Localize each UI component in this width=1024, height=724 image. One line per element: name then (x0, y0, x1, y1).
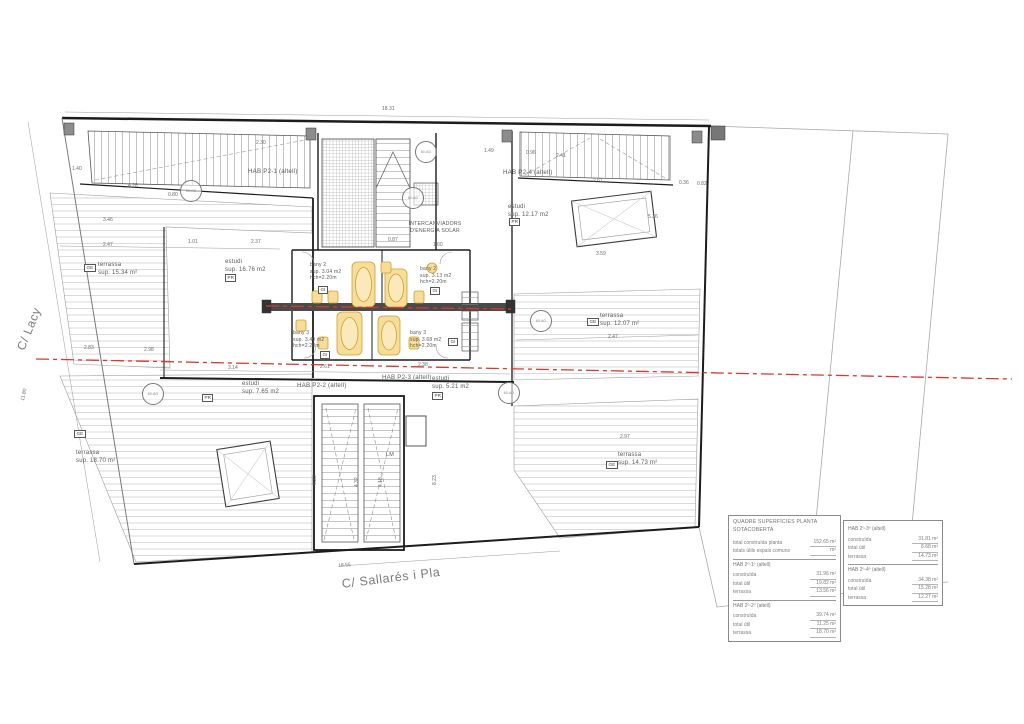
table-section-hab-2-4: HAB 2º-4º (altell) construïda 34.38 m² t… (848, 564, 938, 602)
table-row: terrassa 14.73 m² (848, 553, 938, 562)
plan-label: terrassa sup. 14.73 m² (618, 452, 657, 468)
sink (381, 262, 391, 273)
skylight-top-right (571, 191, 656, 246)
plan-label: HAB P2-3 (altell) (382, 374, 431, 382)
drawing-sheet: HAB P2-1 (altell)estudi sup. 16.76 m2ter… (0, 0, 1024, 724)
table-section-hab-2-3: HAB 2º-3º (altell) construïda 31.81 m² t… (848, 524, 938, 561)
dimension-label: 1.60 (433, 242, 443, 248)
gi-tag: GI (430, 287, 440, 295)
dimension-label: 2.37 (251, 239, 261, 245)
reference-stamp: 60-AG (415, 141, 437, 163)
dimension-label: 2.61 (593, 178, 603, 184)
plan-label: HAB P2-2 (altell) (297, 382, 346, 390)
plan-label: estudi sup. 16.76 m2 (225, 259, 266, 275)
facade-stair-top-left (88, 131, 310, 188)
table-row: total útil 15.28 m² (848, 585, 938, 594)
gi-tag: GI (318, 286, 328, 294)
table-row: construïda 39.74 m² (733, 612, 836, 621)
table-row: terrassa 18.70 m² (733, 629, 836, 638)
dimension-label: 8.23 (432, 475, 438, 485)
plan-label: bany 3 sup. 3.40 m2 hch=2.20m (293, 330, 324, 350)
skylight-bottom-left (217, 441, 279, 507)
pr-tag: PR (202, 394, 213, 402)
dimension-label: 18.55 (338, 562, 351, 569)
dimension-label: 2.61 (320, 364, 330, 370)
dimension-label: 2.47 (608, 334, 618, 340)
reference-stamp: 60-AG (498, 382, 520, 404)
plan-label: terrassa sup. 12.07 m² (600, 313, 639, 329)
plan-label: HAB P2-4 (altell) (503, 169, 552, 177)
dimension-label: 0.36 (679, 180, 689, 186)
plan-label: terrassa sup. 15.34 m² (98, 262, 137, 278)
plan-label: estudi sup. 7.65 m2 (242, 381, 279, 397)
dimension-label: 2.83 (84, 345, 94, 351)
area-table-right: HAB 2º-3º (altell) construïda 31.81 m² t… (843, 520, 943, 606)
dimension-label: 0.96 (526, 150, 536, 156)
pr-tag: PR (225, 274, 236, 282)
table-row: construïda 31.81 m² (848, 536, 938, 545)
plan-label: terrassa sup. 18.70 m² (76, 450, 115, 466)
terrace-p2-4 (514, 289, 700, 380)
dimension-label: 1.01 (188, 239, 198, 245)
dimension-label: 2.38 (418, 362, 428, 368)
dimension-label: 3.46 (103, 217, 113, 223)
ge-tag: GE (606, 461, 618, 469)
plan-label: LM (386, 452, 394, 459)
dimension-label: 8.23 (312, 475, 318, 485)
ge-tag: GE (587, 318, 599, 326)
table-section-hab-2-2: HAB 2º-2º (altell) construïda 39.74 m² t… (733, 600, 836, 638)
sink (328, 291, 338, 303)
table-row: terrassa 12.27 m² (848, 594, 938, 603)
plan-label: estudi sup. 5.21 m2 (432, 376, 469, 392)
table-title: QUADRE SUPERFÍCIES PLANTA SOTACOBERTA (733, 519, 836, 535)
dimension-label: 4.18 (378, 477, 384, 487)
plan-label: bany 3 sup. 3.68 m2 hch=2.20m (410, 330, 441, 350)
plan-label: bany 2 sup. 3.04 m2 hch=2.20m (310, 262, 341, 282)
table-row: total útil 11.25 m² (733, 621, 836, 630)
dimension-label: 1.40 (72, 166, 82, 172)
dimension-label: 5.36 (648, 214, 658, 220)
dimension-label: 0.80 (168, 192, 178, 198)
table-section-hab-2-1: HAB 2º-1º (altell) construïda 31.96 m² t… (733, 559, 836, 597)
table-row: total útil 8.68 m² (848, 544, 938, 553)
plan-label: INTERCANVIADORS D'ENERGIA SOLAR (407, 221, 463, 235)
reference-stamp: 60-AG (530, 310, 552, 332)
reference-stamp: 60-AG (402, 187, 424, 209)
area-table-left: QUADRE SUPERFÍCIES PLANTA SOTACOBERTA to… (728, 515, 841, 642)
dimension-label: 1.49 (484, 148, 494, 154)
dimension-label: 18.31 (382, 106, 395, 112)
dimension-label: 2.98 (144, 347, 154, 353)
pr-tag: PR (432, 392, 443, 400)
table-row: total útil 19.82 m² (733, 580, 836, 589)
terrace-p2-1 (50, 193, 312, 368)
table-row: terrassa 13.56 m² (733, 588, 836, 597)
dimension-label: 2.97 (620, 434, 630, 440)
dimension-label: 3.14 (228, 365, 238, 371)
plan-label: HAB P2-1 (altell) (248, 168, 297, 176)
dimension-label: 2.47 (103, 242, 113, 248)
plan-label: bany 2 sup. 3.13 m2 hch=2.20m (420, 266, 451, 286)
stairwell-lower (314, 396, 426, 550)
dimension-label: 4.32 (354, 477, 360, 487)
dimension-label: 2.30 (256, 140, 266, 146)
table-row: totals útils espais comuns m² (733, 547, 836, 556)
gi-tag: GI (448, 338, 458, 346)
gi-tag: GI (320, 351, 330, 359)
floor-plan-drawing (0, 0, 1024, 724)
dimension-label: 2.41 (556, 153, 566, 159)
dimension-label: 3.59 (596, 251, 606, 257)
dimension-label: 0.82 (697, 181, 707, 187)
table-row: total construïda planta 152.65 m² (733, 539, 836, 548)
dimension-label: 4.28 (128, 183, 138, 189)
pr-tag: PR (509, 218, 520, 226)
reference-stamp: 60-AG (180, 180, 202, 202)
ge-tag: GE (74, 430, 86, 438)
toilet (414, 291, 424, 303)
table-row: construïda 34.38 m² (848, 577, 938, 586)
dimension-label: 0.87 (388, 237, 398, 243)
table-row: construïda 31.96 m² (733, 571, 836, 580)
reference-stamp: 60-AG (142, 383, 164, 405)
ge-tag: GE (84, 264, 96, 272)
